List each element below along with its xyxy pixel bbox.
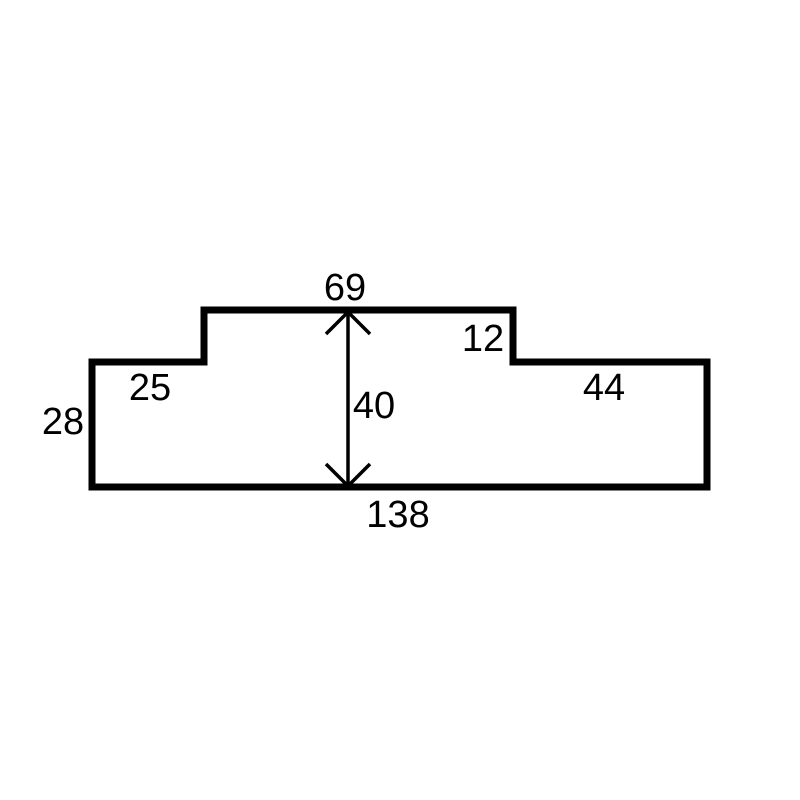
dimension-label-left-height: 28 bbox=[42, 401, 84, 443]
dimension-label-center-height: 40 bbox=[353, 385, 395, 427]
dimension-label-top-right-width: 44 bbox=[583, 367, 625, 409]
dimension-label-top-center-width: 69 bbox=[324, 267, 366, 309]
dimension-label-step-depth: 12 bbox=[462, 318, 504, 360]
part-drawing: 69 12 25 44 28 40 138 bbox=[0, 0, 800, 800]
dimension-label-top-left-width: 25 bbox=[129, 367, 171, 409]
diagram-canvas: 69 12 25 44 28 40 138 bbox=[0, 0, 800, 800]
dimension-label-bottom-width: 138 bbox=[366, 494, 429, 536]
